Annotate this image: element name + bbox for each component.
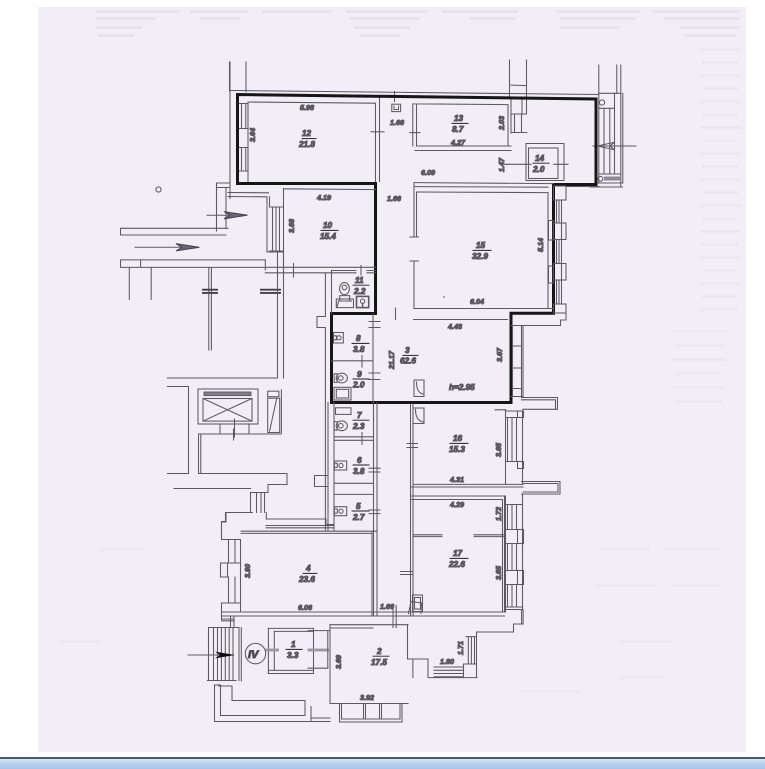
svg-text:2.03: 2.03 (497, 116, 506, 131)
svg-text:21.17: 21.17 (387, 350, 396, 370)
svg-text:6: 6 (357, 456, 362, 465)
svg-text:2.3: 2.3 (352, 422, 365, 431)
svg-text:3.65: 3.65 (494, 442, 503, 457)
svg-text:1.71: 1.71 (456, 641, 465, 655)
svg-text:1.72: 1.72 (494, 507, 503, 521)
svg-text:h=2.95: h=2.95 (449, 383, 475, 392)
svg-text:3.69: 3.69 (334, 655, 343, 669)
svg-text:4.19: 4.19 (316, 193, 331, 202)
svg-text:11: 11 (355, 276, 364, 285)
svg-text:21.8: 21.8 (298, 140, 315, 149)
svg-text:3.64: 3.64 (248, 128, 257, 142)
svg-text:8: 8 (356, 334, 361, 343)
svg-text:2: 2 (376, 647, 382, 656)
svg-text:4: 4 (305, 564, 311, 573)
svg-text:1.80: 1.80 (440, 657, 454, 666)
svg-text:4.48: 4.48 (447, 322, 462, 331)
svg-text:15.3: 15.3 (449, 445, 465, 454)
svg-text:8.7: 8.7 (452, 125, 464, 134)
svg-text:3.90: 3.90 (243, 564, 252, 578)
svg-text:IV: IV (248, 649, 260, 661)
svg-text:4.29: 4.29 (449, 500, 464, 509)
svg-text:22.6: 22.6 (448, 560, 465, 569)
svg-text:2.0: 2.0 (532, 165, 545, 174)
svg-text:17.5: 17.5 (371, 658, 387, 667)
svg-text:2.0: 2.0 (352, 381, 365, 390)
svg-text:3.65: 3.65 (494, 565, 503, 580)
svg-text:4.31: 4.31 (449, 475, 464, 484)
svg-text:16: 16 (453, 434, 463, 443)
svg-text:9: 9 (357, 370, 362, 379)
svg-text:5.14: 5.14 (536, 238, 545, 252)
svg-text:3.3: 3.3 (287, 651, 299, 660)
svg-text:3.8: 3.8 (353, 345, 365, 354)
svg-text:1.66: 1.66 (387, 194, 402, 203)
svg-text:1: 1 (291, 640, 296, 649)
svg-text:3.68: 3.68 (287, 219, 296, 233)
svg-text:12: 12 (302, 129, 312, 138)
svg-text:62.6: 62.6 (400, 357, 416, 366)
svg-text:1.66: 1.66 (380, 602, 395, 611)
svg-text:6.09: 6.09 (421, 168, 435, 177)
svg-text:4.27: 4.27 (450, 138, 466, 147)
svg-text:1.66: 1.66 (390, 118, 405, 127)
svg-text:15.4: 15.4 (320, 232, 336, 241)
svg-text:3.67: 3.67 (495, 347, 504, 362)
svg-text:3.92: 3.92 (360, 693, 374, 702)
svg-text:23.6: 23.6 (298, 575, 315, 584)
svg-text:6.04: 6.04 (470, 297, 484, 306)
svg-text:2.7: 2.7 (352, 513, 365, 522)
svg-text:7: 7 (357, 411, 362, 420)
svg-text:14: 14 (535, 154, 545, 163)
svg-text:13: 13 (454, 114, 464, 123)
svg-text:3.8: 3.8 (353, 467, 365, 476)
svg-text:15: 15 (476, 241, 486, 250)
svg-text:17: 17 (453, 549, 463, 558)
svg-text:5.98: 5.98 (300, 103, 314, 112)
svg-text:2.2: 2.2 (353, 287, 366, 296)
svg-text:32.9: 32.9 (472, 252, 488, 261)
svg-text:5: 5 (356, 502, 361, 511)
svg-text:3: 3 (405, 346, 410, 355)
svg-text:10: 10 (323, 221, 333, 230)
svg-text:6.06: 6.06 (298, 603, 313, 612)
